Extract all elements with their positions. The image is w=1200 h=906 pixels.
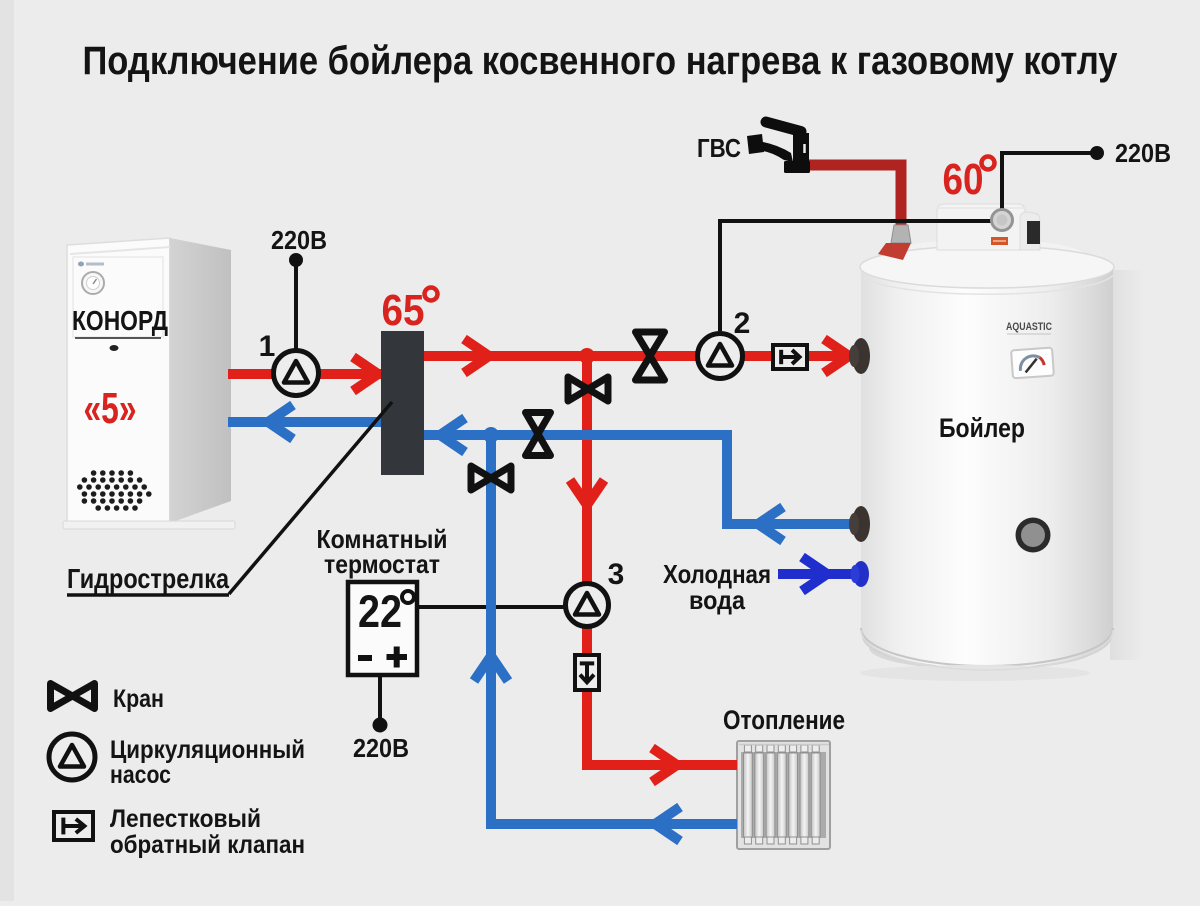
svg-text:Кран: Кран: [113, 685, 164, 713]
svg-text:220В: 220В: [353, 733, 409, 763]
svg-text:Отопление: Отопление: [723, 705, 845, 735]
svg-text:Бойлер: Бойлер: [939, 413, 1025, 443]
svg-text:Циркуляционный: Циркуляционный: [110, 736, 305, 764]
svg-text:220В: 220В: [1115, 138, 1171, 168]
svg-text:термостат: термостат: [324, 549, 440, 579]
svg-text:65: 65: [382, 286, 425, 335]
svg-text:AQUASTIC: AQUASTIC: [1006, 321, 1052, 333]
svg-text:ГВС: ГВС: [697, 133, 741, 163]
svg-text:«5»: «5»: [84, 384, 137, 433]
svg-text:3: 3: [608, 558, 625, 591]
svg-text:насос: насос: [110, 761, 171, 789]
svg-text:Лепестковый: Лепестковый: [110, 805, 261, 833]
svg-text:22: 22: [358, 586, 402, 637]
svg-text:1: 1: [259, 330, 276, 363]
svg-text:вода: вода: [689, 585, 745, 615]
svg-text:Гидрострелка: Гидрострелка: [67, 563, 229, 594]
svg-text:Подключение бойлера косвенного: Подключение бойлера косвенного нагрева к…: [83, 39, 1119, 83]
svg-text:220В: 220В: [271, 225, 327, 255]
svg-text:обратный клапан: обратный клапан: [110, 831, 305, 859]
svg-text:2: 2: [734, 307, 751, 340]
svg-text:КОНОРД: КОНОРД: [72, 305, 168, 336]
svg-text:60: 60: [943, 155, 984, 204]
